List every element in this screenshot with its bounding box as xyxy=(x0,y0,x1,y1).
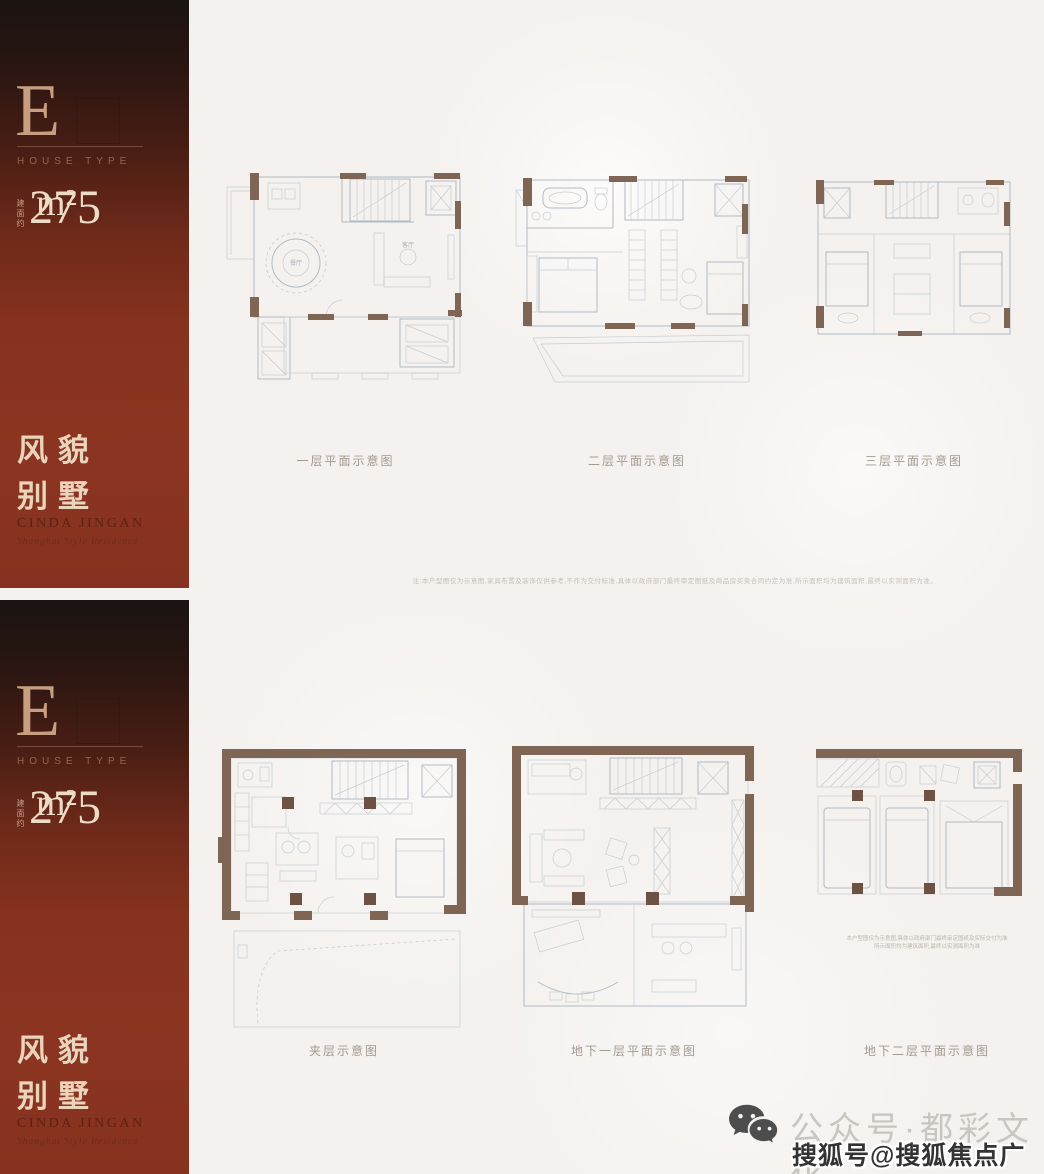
house-type-letter: E xyxy=(15,674,60,748)
area-unit: m² xyxy=(36,184,77,222)
sidebar-panel-2: E HOUSE TYPE 建面约 275m² 风貌 别墅 CINDA JINGA… xyxy=(0,600,189,1174)
tagline-line2: 别墅 xyxy=(17,474,99,520)
house-type-label: HOUSE TYPE xyxy=(17,756,131,767)
tagline-line1: 风貌 xyxy=(17,1028,99,1074)
wechat-icon xyxy=(727,1103,781,1149)
tagline: 风貌 别墅 xyxy=(17,428,99,520)
area-prefix: 建面约 xyxy=(15,799,26,829)
floor-plan-level2 xyxy=(513,168,761,396)
floor-plan-level3 xyxy=(808,174,1020,346)
brand-name: CINDA JINGAN xyxy=(17,516,145,532)
floor-plan-mezzanine xyxy=(218,745,470,1033)
tagline-line1: 风貌 xyxy=(17,428,99,474)
plan-label-mezzanine: 夹层示意图 xyxy=(218,1042,470,1059)
room-label-dining: 餐厅 xyxy=(290,259,302,267)
disclaimer-text: 注:本户型图仅为示意图,家具布置及装饰仅供参考,不作为交付标准,具体以政府部门最… xyxy=(330,575,1020,585)
brand-subtitle: Shanghai Style Residence xyxy=(17,537,139,547)
floor-plan-level1: 餐厅 客厅 xyxy=(222,167,469,391)
plan-label-level2: 二层平面示意图 xyxy=(513,452,761,469)
house-type-label: HOUSE TYPE xyxy=(17,156,131,167)
plan-label-level3: 三层平面示意图 xyxy=(808,452,1020,469)
divider-line xyxy=(17,746,143,747)
plan-note: 本户型图仅为示意图,具体以政府部门最终审定图纸及实际交付为准 所示面积均为建筑面… xyxy=(806,935,1044,951)
divider-line xyxy=(17,146,143,147)
plan-note-line2: 所示面积均为建筑面积,最终以实测面积为准 xyxy=(806,943,1044,951)
plan-label-level1: 一层平面示意图 xyxy=(222,452,469,469)
tagline: 风貌 别墅 xyxy=(17,1028,99,1120)
plan-label-basement2: 地下二层平面示意图 xyxy=(816,1042,1038,1059)
plan-note-line1: 本户型图仅为示意图,具体以政府部门最终审定图纸及实际交付为准 xyxy=(806,935,1044,943)
area-prefix: 建面约 xyxy=(15,199,26,229)
room-label-living: 客厅 xyxy=(402,241,414,249)
brand-subtitle: Shanghai Style Residence xyxy=(17,1137,139,1147)
decorative-square xyxy=(76,98,120,144)
area-unit: m² xyxy=(36,784,77,822)
house-type-letter: E xyxy=(15,74,60,148)
plan-label-basement1: 地下一层平面示意图 xyxy=(506,1042,762,1059)
flyer-page: E HOUSE TYPE 建面约 275m² 风貌 别墅 CINDA JINGA… xyxy=(0,0,1044,1174)
floor-plan-basement1 xyxy=(506,742,762,1024)
decorative-square xyxy=(76,698,120,744)
tagline-line2: 别墅 xyxy=(17,1074,99,1120)
sidebar-panel-1: E HOUSE TYPE 建面约 275m² 风貌 别墅 CINDA JINGA… xyxy=(0,0,189,588)
brand-name: CINDA JINGAN xyxy=(17,1116,145,1132)
sohu-watermark-text: 搜狐号@搜狐焦点广安站 xyxy=(792,1136,1044,1174)
floor-plan-basement2 xyxy=(816,746,1038,904)
